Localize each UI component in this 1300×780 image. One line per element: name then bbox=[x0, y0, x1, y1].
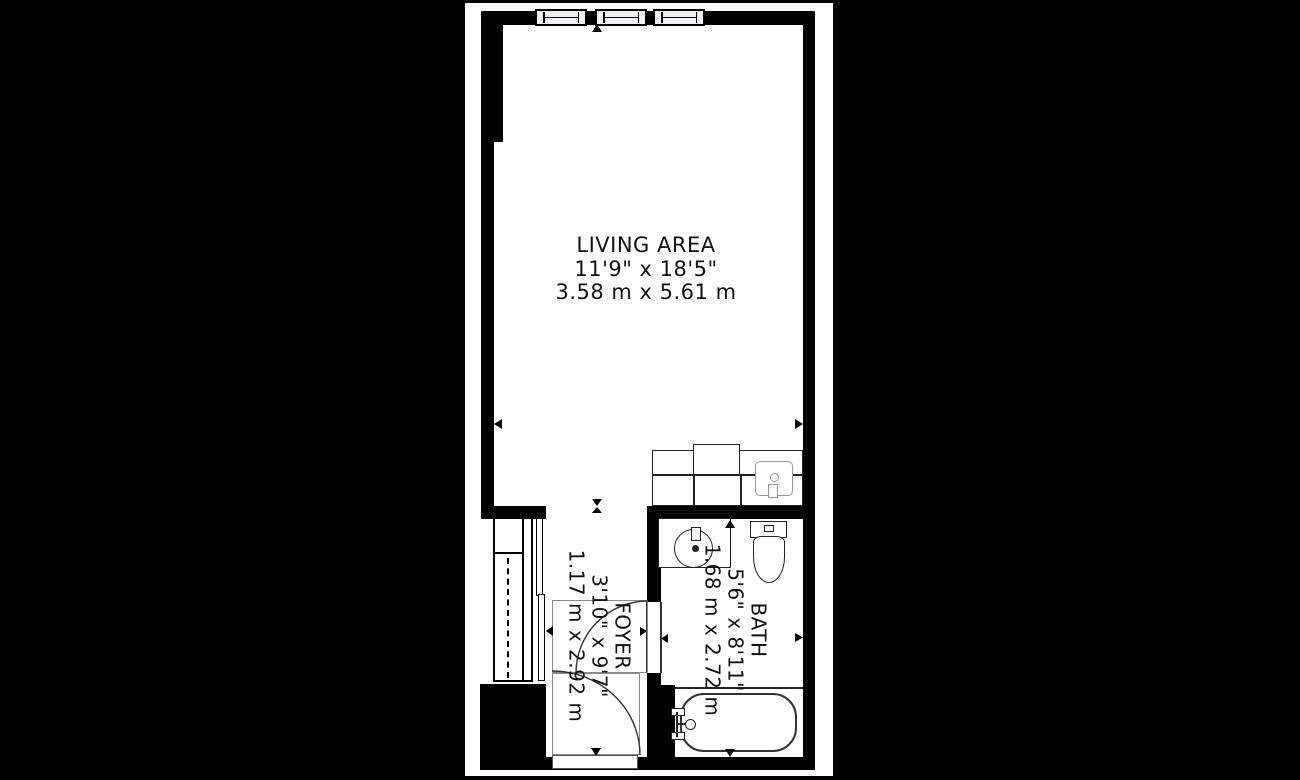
living-area-name: LIVING AREA bbox=[555, 234, 736, 258]
living-area-imperial-dims: 11'9" x 18'5" bbox=[555, 258, 736, 282]
tub-faucet-handle bbox=[671, 732, 685, 740]
window-symbol-3 bbox=[653, 9, 705, 26]
bath-label: BATH 5'6" x 8'11" 1.68 m x 2.72 m bbox=[701, 544, 770, 717]
foyer-imperial-dims: 3'10" x 9'7" bbox=[588, 550, 611, 723]
tub-faucet-handle bbox=[671, 708, 685, 716]
kitchen-sink-drain-icon bbox=[770, 473, 779, 482]
bath-sink-faucet-icon bbox=[691, 527, 701, 541]
kitchen-appliance-symbol bbox=[693, 444, 740, 475]
floor-plan-page: LIVING AREA 11'9" x 18'5" 3.58 m x 5.61 … bbox=[0, 0, 1300, 780]
wall-foyer-bath-lower bbox=[647, 673, 661, 685]
wall-bath-bottom-left bbox=[647, 685, 675, 758]
closet-sliding-door-panel bbox=[536, 518, 543, 596]
living-area-metric-dims: 3.58 m x 5.61 m bbox=[555, 281, 736, 305]
tub-spout-icon bbox=[685, 719, 696, 730]
wall-top bbox=[481, 11, 815, 25]
bath-name: BATH bbox=[747, 544, 770, 717]
window-symbol-2 bbox=[595, 9, 647, 26]
closet-divider bbox=[522, 517, 524, 682]
entry-door-leaf bbox=[552, 755, 638, 769]
living-area-label: LIVING AREA 11'9" x 18'5" 3.58 m x 5.61 … bbox=[555, 234, 736, 305]
wall-left-upper bbox=[481, 11, 503, 142]
kitchen-faucet-icon bbox=[768, 484, 778, 498]
bath-metric-dims: 1.68 m x 2.72 m bbox=[701, 544, 724, 717]
foyer-metric-dims: 1.17 m x 2.92 m bbox=[565, 550, 588, 723]
foyer-label: FOYER 3'10" x 9'7" 1.17 m x 2.92 m bbox=[565, 550, 634, 723]
wall-bottom bbox=[480, 757, 815, 770]
closet-shelf-line bbox=[493, 552, 523, 554]
window-symbol-1 bbox=[535, 9, 587, 26]
toilet-flush-button bbox=[764, 525, 774, 532]
closet-symbol bbox=[493, 517, 533, 682]
bath-imperial-dims: 5'6" x 8'11" bbox=[724, 544, 747, 717]
wall-right bbox=[803, 11, 815, 770]
kitchen-cabinet-divider bbox=[740, 475, 742, 506]
foyer-name: FOYER bbox=[611, 550, 634, 723]
bath-door-jamb-right bbox=[660, 602, 662, 673]
wall-left-lower bbox=[481, 142, 494, 519]
closet-rod-dashed-line bbox=[507, 558, 509, 678]
kitchen-cabinet-divider bbox=[693, 475, 695, 506]
closet-sliding-door-panel bbox=[538, 594, 545, 681]
bath-sink-drain-icon bbox=[692, 545, 699, 552]
